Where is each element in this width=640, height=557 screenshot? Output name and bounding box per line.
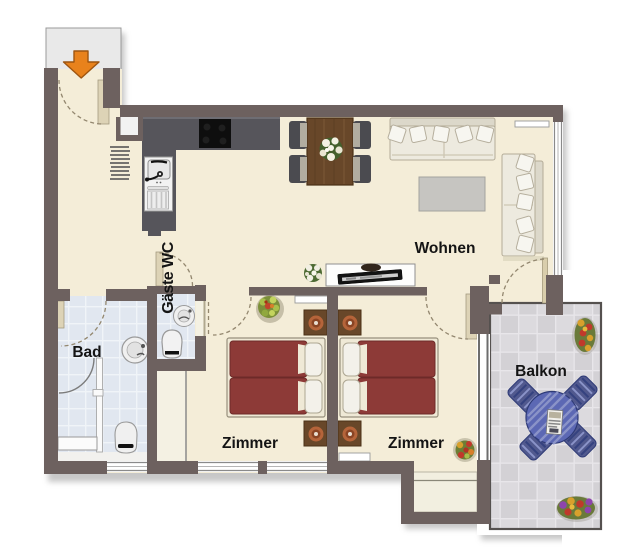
svg-text:Bad: Bad — [72, 344, 101, 361]
svg-text:Zimmer: Zimmer — [222, 435, 278, 452]
svg-text:Balkon: Balkon — [515, 363, 567, 380]
svg-text:Zimmer: Zimmer — [388, 435, 444, 452]
svg-text:Gäste WC: Gäste WC — [160, 241, 177, 314]
svg-text:Wohnen: Wohnen — [415, 240, 476, 257]
